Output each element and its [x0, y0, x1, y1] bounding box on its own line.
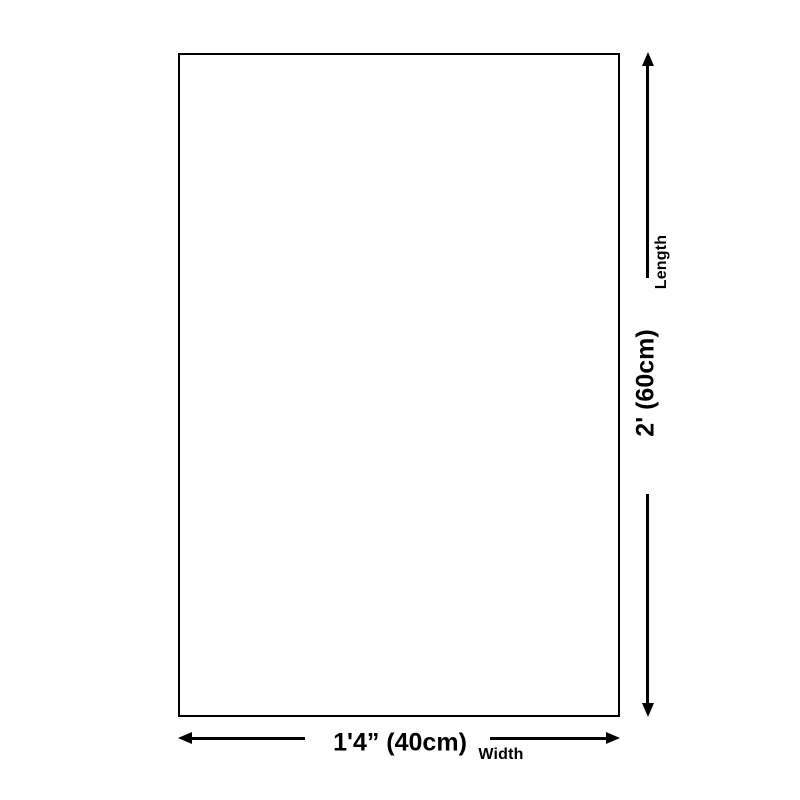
- arrow-up-icon: [642, 52, 654, 66]
- arrow-left-icon: [178, 732, 192, 744]
- product-outline-rectangle: [178, 53, 620, 717]
- length-axis-label: Length: [654, 235, 670, 290]
- length-value-label: 2' (60cm): [634, 329, 659, 436]
- width-dimension-line-right: [490, 737, 606, 740]
- width-dimension-line-left: [192, 737, 305, 740]
- arrow-down-icon: [642, 703, 654, 717]
- width-axis-label: Width: [478, 747, 523, 763]
- dimension-diagram: Length 2' (60cm) 1'4” (40cm) Width: [0, 0, 800, 800]
- length-dimension-line-top: [646, 65, 649, 278]
- arrow-right-icon: [606, 732, 620, 744]
- length-dimension-line-bottom: [646, 494, 649, 703]
- width-value-label: 1'4” (40cm): [333, 731, 467, 756]
